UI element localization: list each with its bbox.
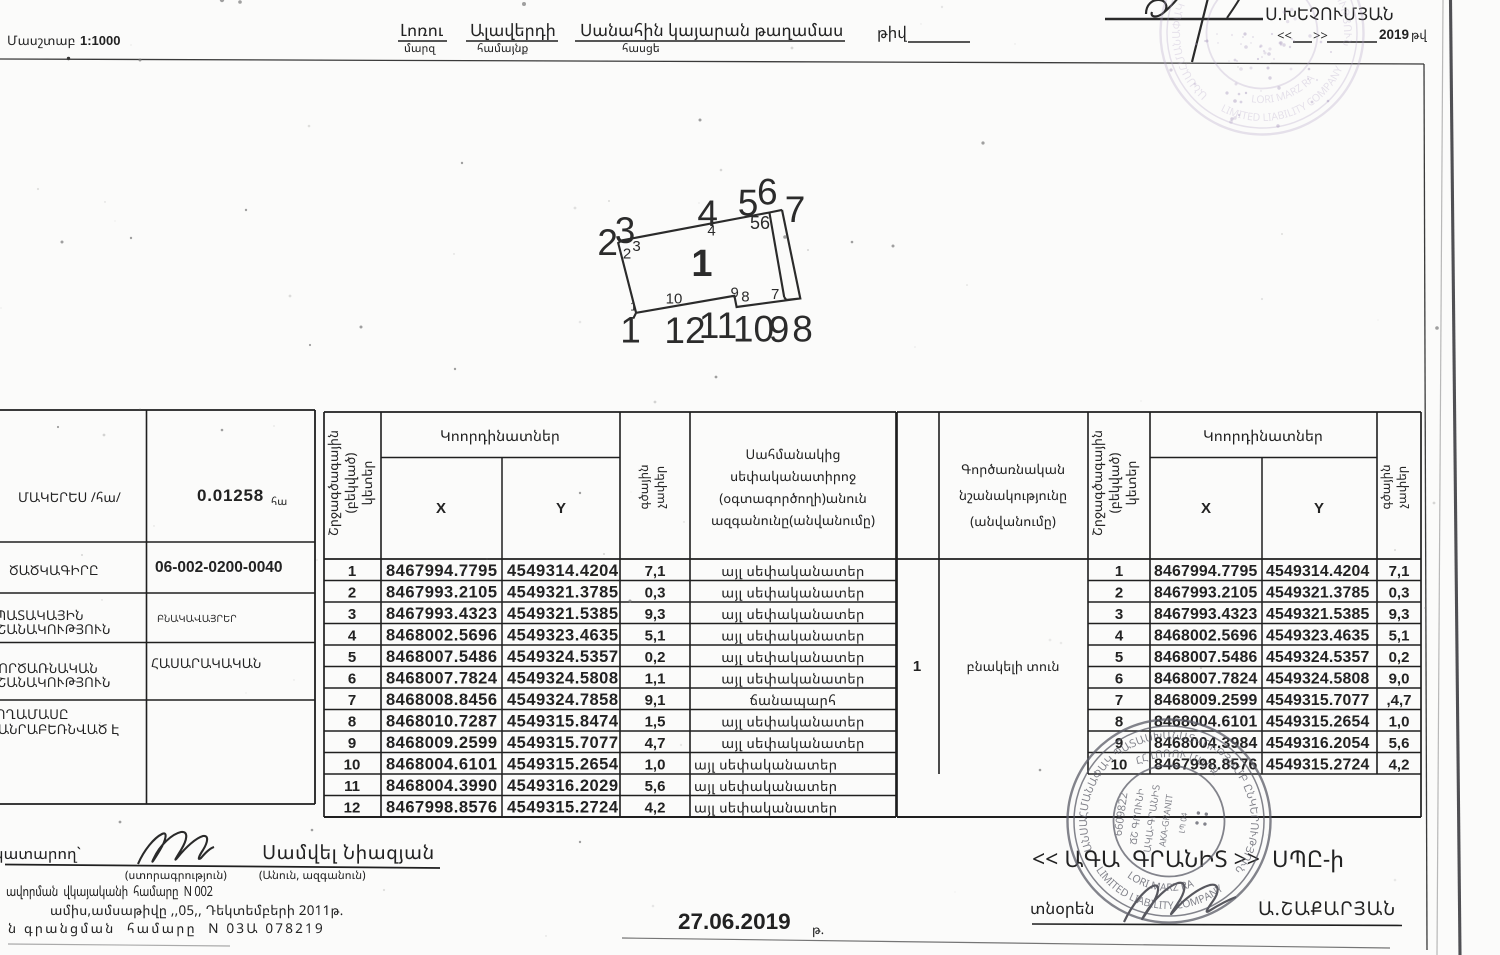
svg-text:8467993.4323: 8467993.4323: [1154, 606, 1257, 623]
svg-text:27.06.2019: 27.06.2019: [678, 909, 791, 934]
svg-text:6: 6: [757, 172, 778, 213]
svg-text:1,5: 1,5: [645, 714, 666, 731]
svg-text:4549323.4635: 4549323.4635: [507, 627, 619, 645]
svg-text:8: 8: [348, 714, 356, 731]
svg-text:4549316.2054: 4549316.2054: [1266, 735, 1369, 752]
svg-text:9,3: 9,3: [1389, 606, 1410, 623]
svg-text:4,2: 4,2: [645, 800, 666, 817]
svg-text:8467998.8576: 8467998.8576: [386, 799, 498, 817]
svg-text:0,3: 0,3: [1389, 585, 1410, 602]
svg-text:7: 7: [348, 692, 356, 709]
svg-text:10: 10: [666, 290, 683, 307]
svg-text:4549324.5808: 4549324.5808: [1266, 671, 1369, 688]
svg-text:1: 1: [630, 300, 637, 314]
svg-text:8: 8: [741, 288, 749, 305]
svg-text:4549324.7858: 4549324.7858: [507, 691, 619, 709]
svg-text:4549315.2724: 4549315.2724: [1266, 757, 1369, 774]
svg-text:2: 2: [348, 585, 356, 602]
svg-text:0,2: 0,2: [1389, 649, 1410, 666]
svg-text:8468002.5696: 8468002.5696: [386, 627, 498, 645]
svg-text:4549323.4635: 4549323.4635: [1266, 628, 1369, 645]
svg-text:4549321.3785: 4549321.3785: [1266, 585, 1369, 602]
svg-text:8467993.2105: 8467993.2105: [386, 584, 498, 602]
svg-text:9,3: 9,3: [645, 606, 666, 623]
svg-text:0.01258: 0.01258: [197, 486, 264, 505]
svg-text:8468009.2599: 8468009.2599: [1154, 692, 1257, 709]
svg-text:7: 7: [771, 286, 779, 303]
svg-text:9,0: 9,0: [1389, 671, 1410, 688]
svg-text:06-002-0200-0040: 06-002-0200-0040: [155, 559, 283, 576]
svg-text:5,1: 5,1: [1389, 628, 1410, 645]
svg-text:1: 1: [913, 658, 921, 675]
svg-text:4549315.7077: 4549315.7077: [1266, 692, 1369, 709]
svg-text:4,7: 4,7: [645, 735, 666, 752]
svg-text:5: 5: [1115, 649, 1123, 666]
svg-text:8467993.2105: 8467993.2105: [1154, 585, 1257, 602]
svg-text:8468007.7824: 8468007.7824: [386, 670, 498, 688]
svg-text:Y: Y: [1314, 500, 1324, 517]
svg-text:8468004.3990: 8468004.3990: [386, 777, 498, 795]
svg-text:8468004.6101: 8468004.6101: [1154, 714, 1257, 731]
svg-text:4: 4: [1115, 628, 1124, 645]
svg-text:12: 12: [344, 800, 361, 817]
svg-text:9,1: 9,1: [645, 692, 666, 709]
svg-text:4549321.5385: 4549321.5385: [1266, 606, 1369, 623]
svg-text:9: 9: [731, 285, 739, 302]
svg-text:4549314.4204: 4549314.4204: [1266, 563, 1369, 580]
svg-text:,4,7: ,4,7: [1386, 692, 1411, 709]
svg-text:4549321.3785: 4549321.3785: [507, 584, 619, 602]
svg-text:1,1: 1,1: [645, 671, 666, 688]
svg-text:4549315.8474: 4549315.8474: [507, 713, 619, 731]
svg-text:4549314.4204: 4549314.4204: [507, 562, 619, 580]
svg-text:8468010.7287: 8468010.7287: [386, 713, 498, 731]
svg-text:4,2: 4,2: [1389, 757, 1410, 774]
svg-text:Y: Y: [556, 500, 566, 517]
svg-text:8467994.7795: 8467994.7795: [386, 562, 498, 580]
svg-text:1: 1: [348, 563, 356, 580]
svg-text:8467993.4323: 8467993.4323: [386, 605, 498, 623]
svg-text:2: 2: [623, 245, 631, 262]
svg-text:4549324.5808: 4549324.5808: [507, 670, 619, 688]
svg-text:8: 8: [1115, 714, 1123, 731]
svg-text:8: 8: [792, 309, 813, 350]
svg-text:2: 2: [1115, 585, 1123, 602]
svg-text:4549321.5385: 4549321.5385: [507, 605, 619, 623]
svg-text:0,3: 0,3: [645, 585, 666, 602]
svg-text:4549324.5357: 4549324.5357: [507, 648, 619, 666]
svg-text:4549315.2654: 4549315.2654: [507, 756, 619, 774]
svg-text:10: 10: [1111, 757, 1128, 774]
svg-text:9: 9: [769, 309, 790, 350]
svg-text:4: 4: [707, 222, 715, 239]
svg-text:X: X: [1201, 500, 1211, 517]
svg-text:0,2: 0,2: [645, 649, 666, 666]
svg-text:8468009.2599: 8468009.2599: [386, 734, 498, 752]
svg-text:11: 11: [699, 305, 737, 346]
svg-text:1:1000: 1:1000: [80, 33, 120, 48]
svg-text:2019: 2019: [1379, 27, 1409, 42]
svg-text:1,0: 1,0: [645, 757, 666, 774]
svg-text:7,1: 7,1: [645, 563, 666, 580]
svg-text:4549315.2654: 4549315.2654: [1266, 714, 1369, 731]
svg-text:1: 1: [691, 243, 712, 285]
svg-text:7: 7: [1115, 692, 1123, 709]
svg-text:5,6: 5,6: [645, 778, 666, 795]
svg-text:8468007.7824: 8468007.7824: [1154, 671, 1257, 688]
svg-text:5,1: 5,1: [645, 628, 666, 645]
svg-text:3: 3: [632, 238, 640, 255]
svg-text:3: 3: [1115, 606, 1123, 623]
svg-text:3: 3: [348, 606, 356, 623]
svg-text:5: 5: [348, 649, 356, 666]
svg-text:X: X: [436, 500, 446, 517]
svg-text:8468008.8456: 8468008.8456: [386, 691, 498, 709]
svg-text:4549315.7077: 4549315.7077: [507, 734, 619, 752]
svg-text:10: 10: [344, 757, 361, 774]
svg-text:6: 6: [348, 671, 356, 688]
svg-text:4549324.5357: 4549324.5357: [1266, 649, 1369, 666]
svg-text:7: 7: [785, 189, 806, 230]
svg-text:8468002.5696: 8468002.5696: [1154, 628, 1257, 645]
svg-text:1: 1: [620, 310, 641, 351]
svg-text:7,1: 7,1: [1389, 563, 1410, 580]
svg-text:4: 4: [348, 628, 357, 645]
svg-text:4549315.2724: 4549315.2724: [507, 799, 619, 817]
svg-text:9: 9: [348, 735, 356, 752]
svg-text:8468007.5486: 8468007.5486: [1154, 649, 1257, 666]
svg-text:11: 11: [344, 778, 360, 795]
svg-text:4549316.2029: 4549316.2029: [507, 777, 619, 795]
svg-text:8467994.7795: 8467994.7795: [1154, 563, 1257, 580]
svg-text:56: 56: [750, 213, 770, 233]
svg-text:1,0: 1,0: [1389, 714, 1410, 731]
svg-text:8468007.5486: 8468007.5486: [386, 648, 498, 666]
svg-text:5,6: 5,6: [1389, 735, 1410, 752]
svg-text:8468004.6101: 8468004.6101: [386, 756, 498, 774]
svg-text:1: 1: [1115, 563, 1123, 580]
svg-text:6: 6: [1115, 671, 1123, 688]
